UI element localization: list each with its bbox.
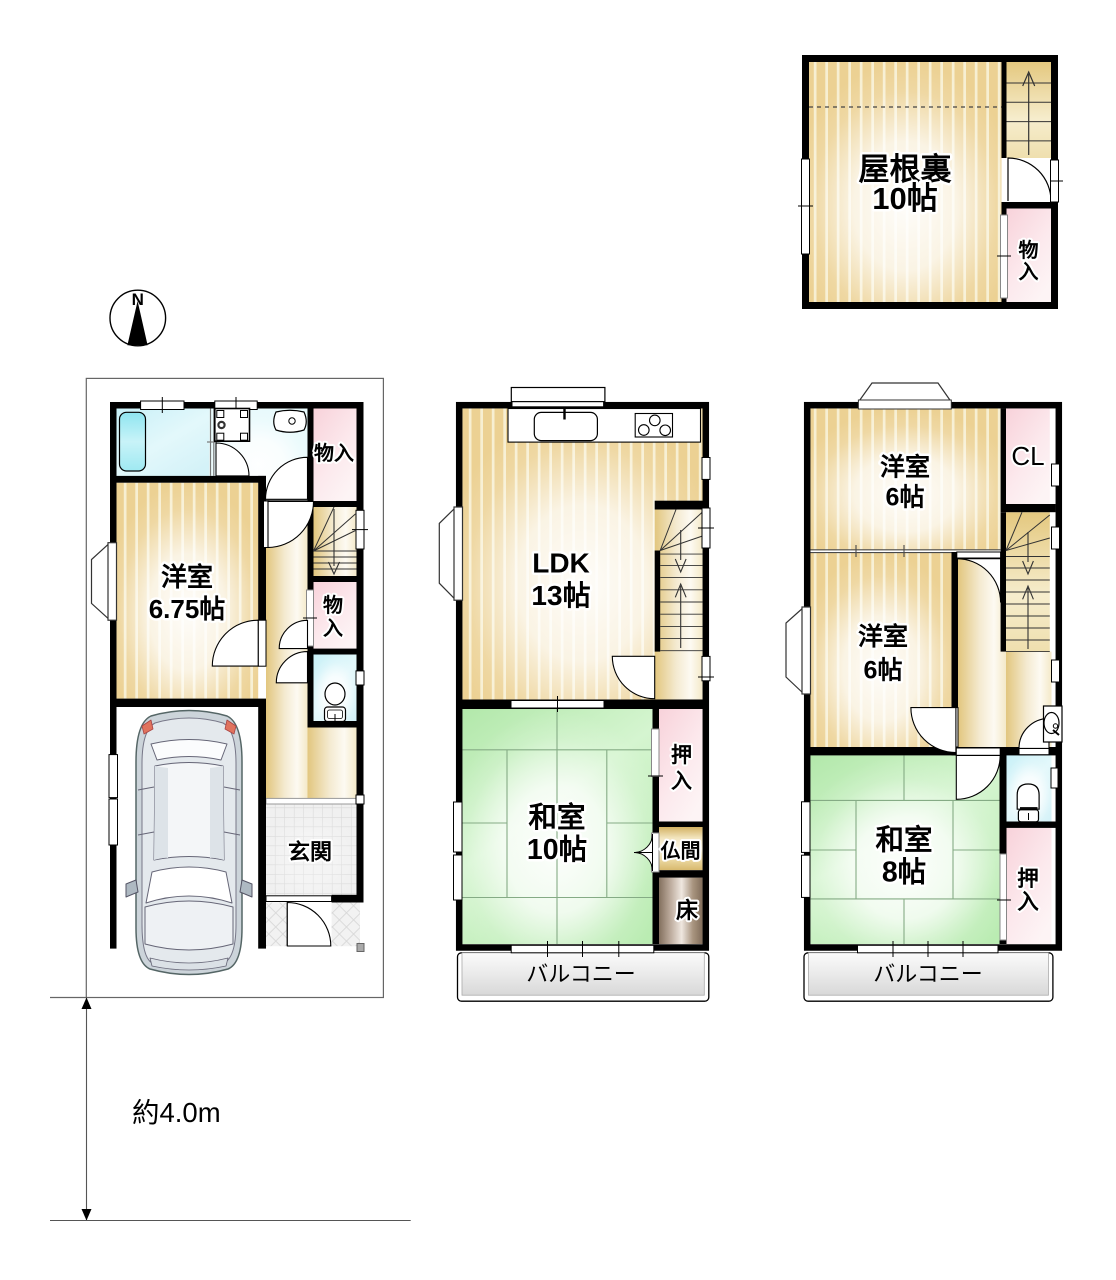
svg-text:8帖: 8帖 bbox=[882, 857, 926, 889]
svg-text:約4.0m: 約4.0m bbox=[132, 1097, 221, 1128]
svg-text:押: 押 bbox=[671, 743, 692, 767]
svg-text:6帖: 6帖 bbox=[886, 484, 925, 512]
svg-text:物: 物 bbox=[1019, 238, 1039, 262]
svg-text:CL: CL bbox=[1011, 441, 1044, 471]
svg-text:入: 入 bbox=[671, 770, 692, 793]
svg-text:洋室: 洋室 bbox=[858, 622, 908, 651]
svg-text:和室: 和室 bbox=[528, 801, 585, 834]
svg-text:バルコニー: バルコニー bbox=[526, 962, 636, 987]
svg-text:押: 押 bbox=[1017, 867, 1039, 891]
svg-text:和室: 和室 bbox=[875, 824, 932, 857]
svg-text:10帖: 10帖 bbox=[872, 181, 937, 216]
svg-text:洋室: 洋室 bbox=[161, 562, 213, 592]
svg-text:10帖: 10帖 bbox=[527, 834, 587, 866]
svg-text:入: 入 bbox=[1017, 890, 1039, 914]
svg-text:バルコニー: バルコニー bbox=[873, 962, 983, 987]
svg-text:入: 入 bbox=[323, 617, 343, 640]
svg-text:6帖: 6帖 bbox=[864, 657, 903, 685]
svg-text:LDK: LDK bbox=[532, 548, 590, 579]
svg-text:入: 入 bbox=[1019, 260, 1039, 283]
svg-text:物入: 物入 bbox=[314, 441, 354, 465]
svg-text:13帖: 13帖 bbox=[531, 580, 590, 611]
svg-text:仏間: 仏間 bbox=[661, 840, 701, 863]
svg-text:物: 物 bbox=[323, 593, 343, 617]
svg-text:玄関: 玄関 bbox=[288, 840, 332, 865]
svg-text:洋室: 洋室 bbox=[880, 453, 930, 482]
svg-text:6.75帖: 6.75帖 bbox=[149, 594, 226, 624]
svg-text:床: 床 bbox=[676, 898, 699, 923]
